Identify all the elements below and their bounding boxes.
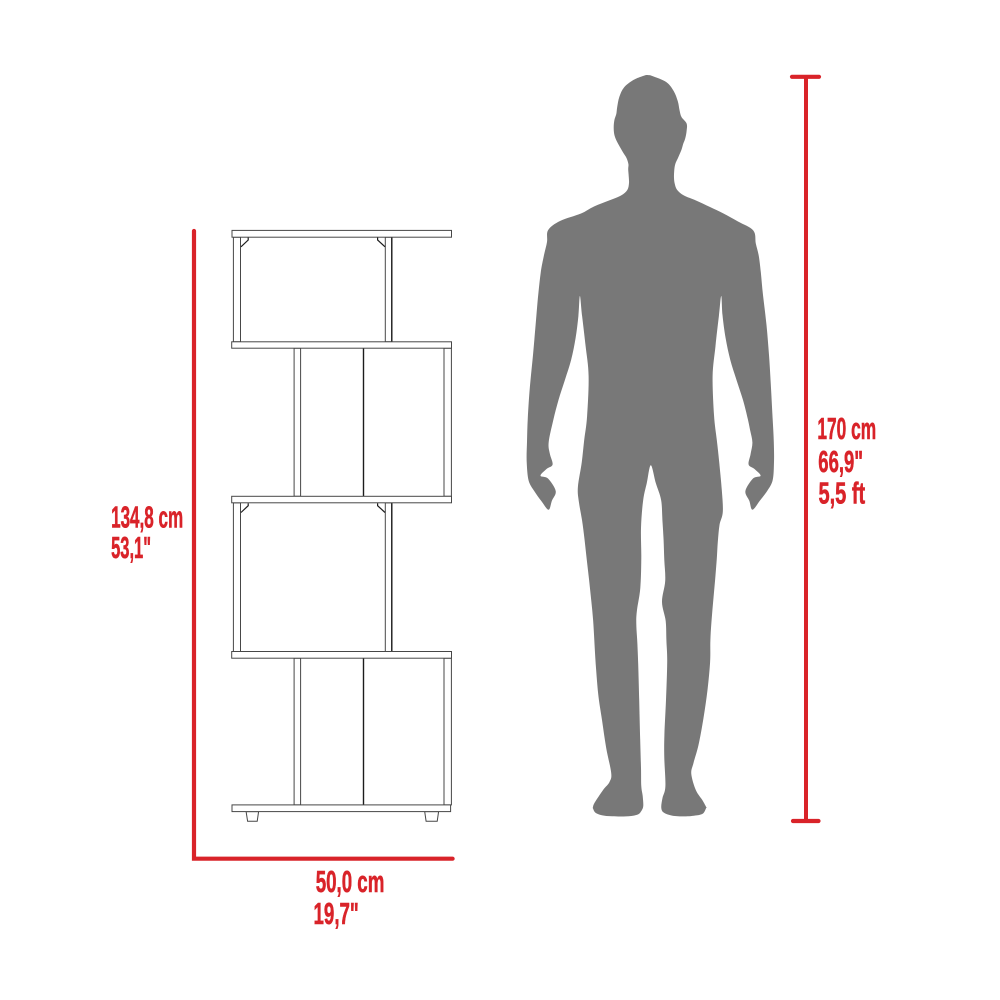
svg-text:170 cm: 170 cm: [817, 412, 876, 447]
svg-text:50,0 cm: 50,0 cm: [316, 865, 385, 899]
svg-text:5,5 ft: 5,5 ft: [819, 475, 866, 511]
svg-text:134,8 cm: 134,8 cm: [111, 500, 183, 535]
svg-text:19,7": 19,7": [314, 897, 359, 931]
svg-text:53,1": 53,1": [111, 532, 151, 566]
